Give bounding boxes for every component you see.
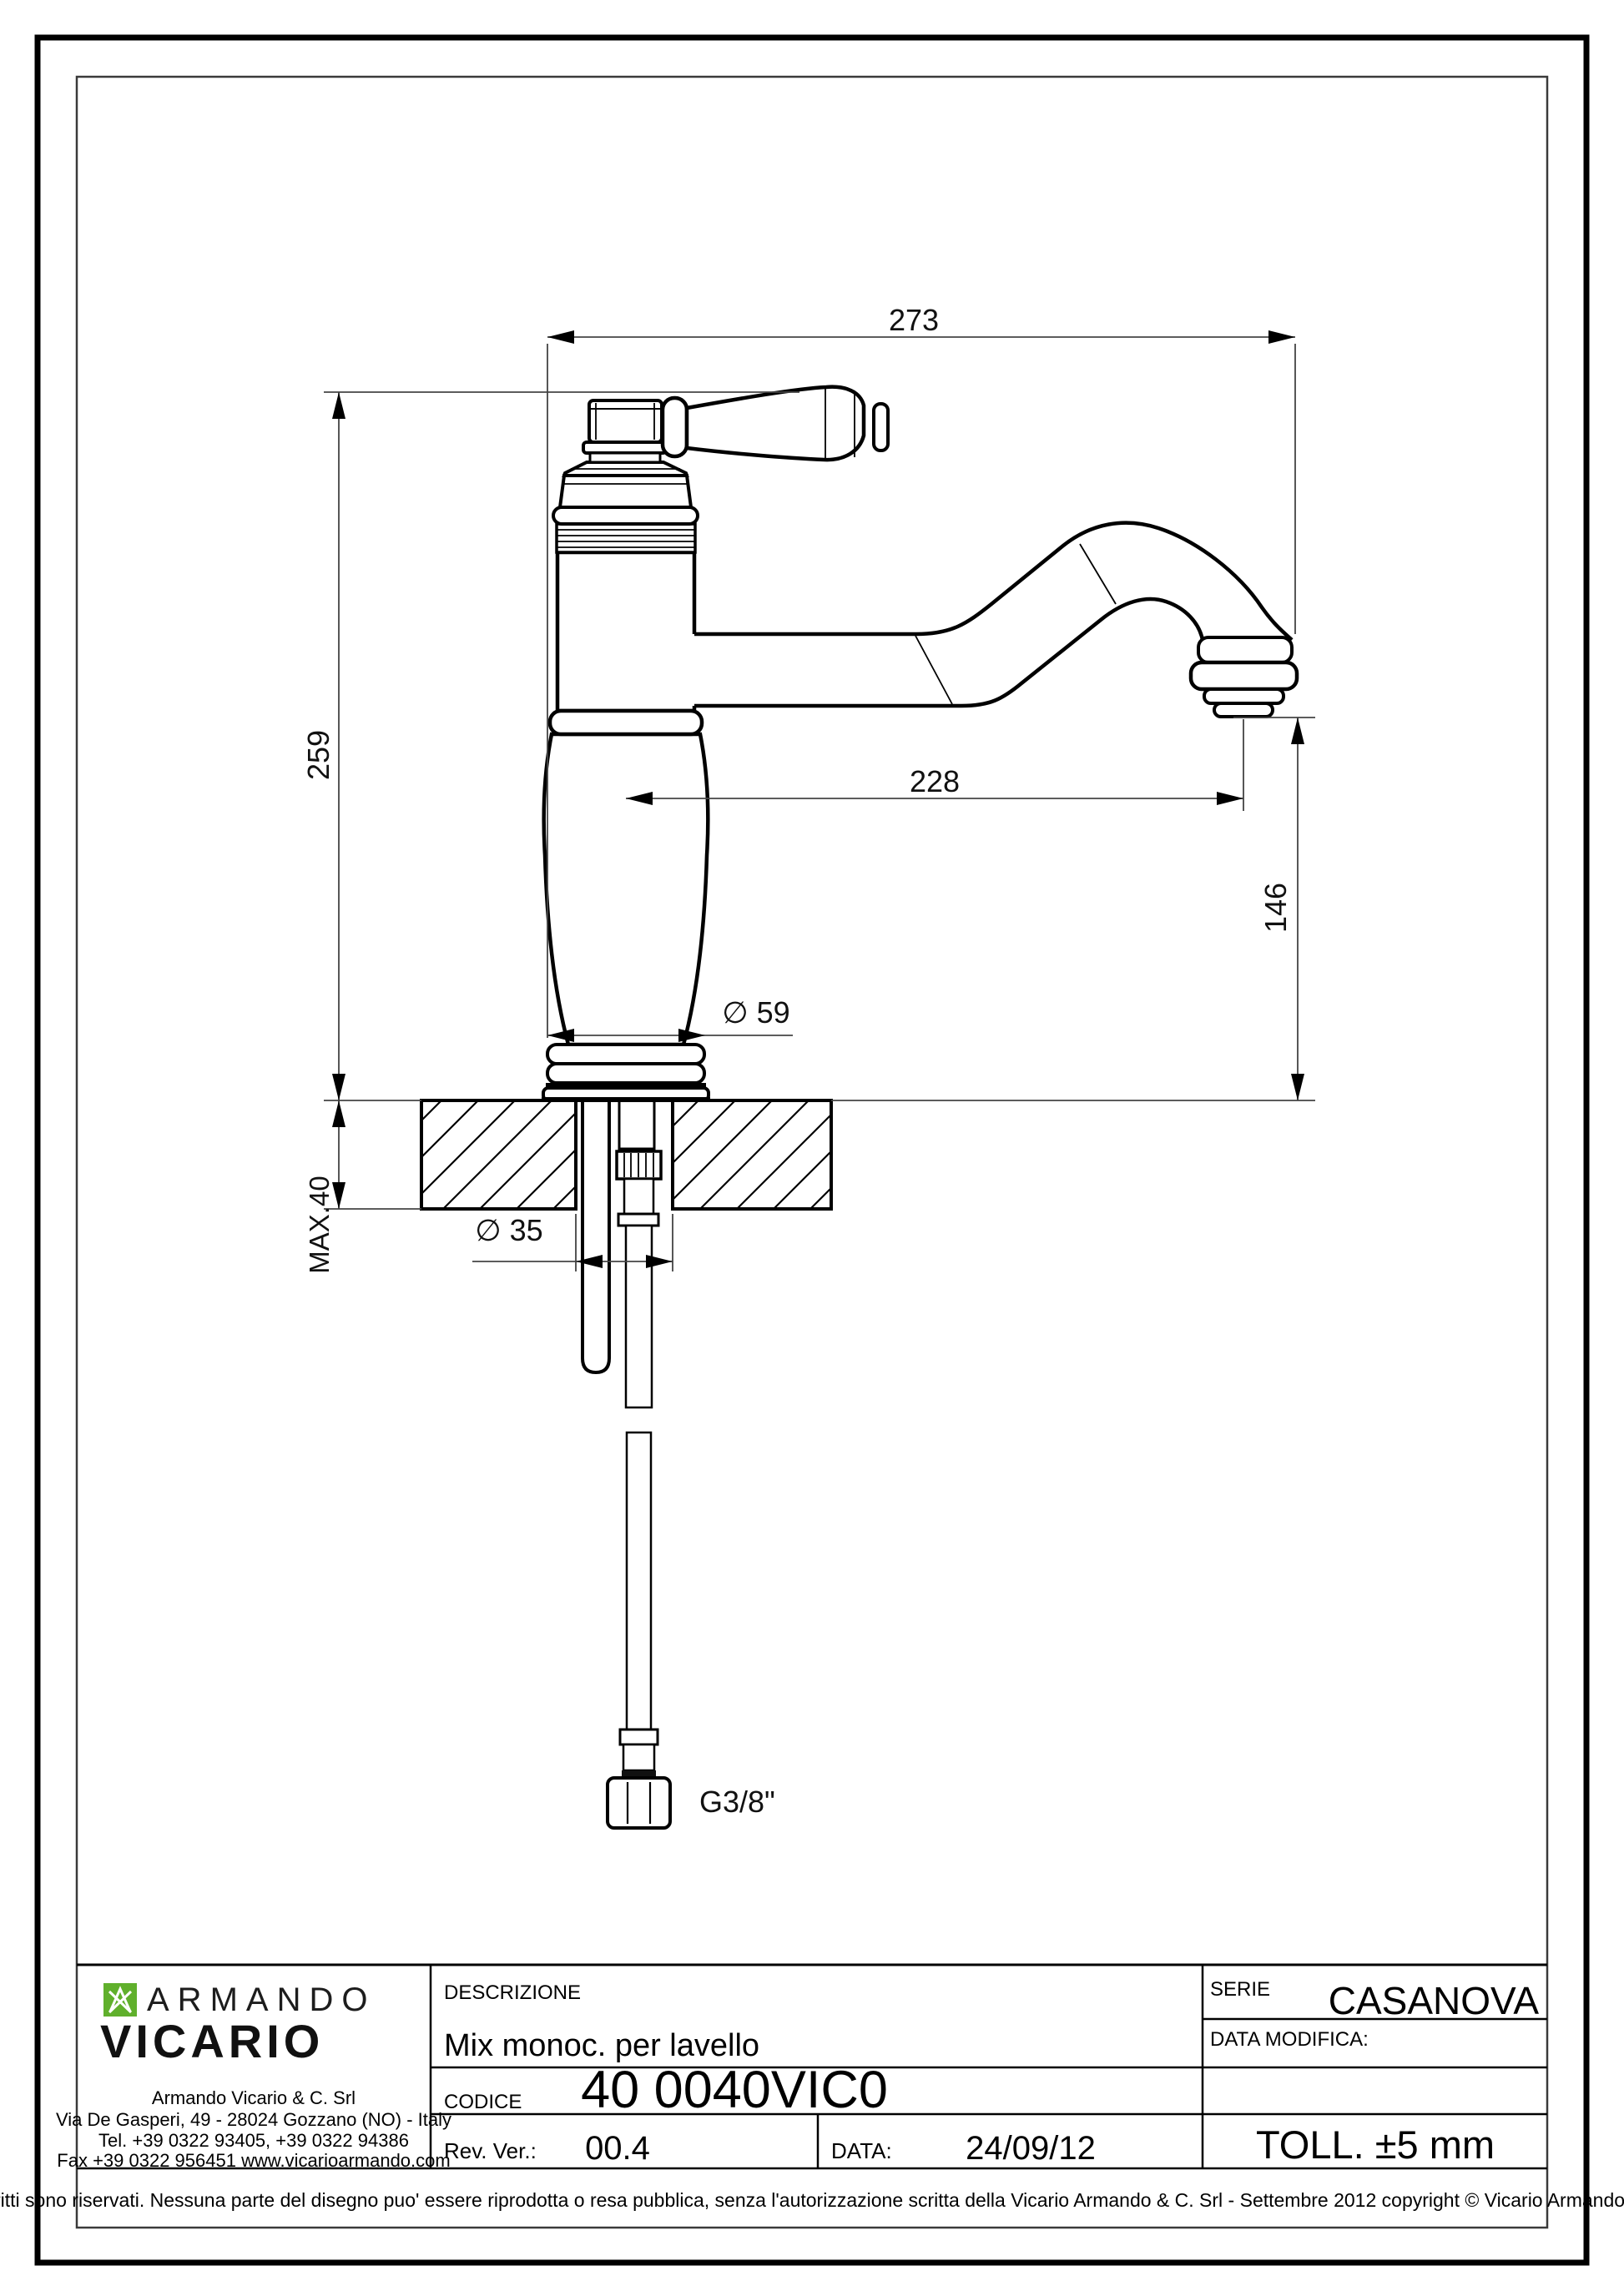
- serie-value: CASANOVA: [1329, 1979, 1540, 2022]
- data-modifica-label: DATA MODIFICA:: [1210, 2028, 1369, 2051]
- codice-value: 40 0040VIC0: [581, 2061, 888, 2119]
- dim-hole-diameter: ∅ 35: [475, 1213, 542, 1247]
- address-line: Via De Gasperi, 49 - 28024 Gozzano (NO) …: [56, 2109, 451, 2130]
- dim-total-height: 259: [301, 730, 335, 780]
- codice-label: CODICE: [444, 2091, 522, 2113]
- data-label: DATA:: [831, 2138, 892, 2163]
- dim-supply-thread: G3/8": [699, 1785, 775, 1819]
- descrizione-label: DESCRIZIONE: [444, 1981, 581, 2004]
- address-line: Armando Vicario & C. Srl: [152, 2087, 356, 2108]
- address-line: Fax +39 0322 956451 www.vicarioarmando.c…: [57, 2150, 450, 2171]
- descrizione-value: Mix monoc. per lavello: [444, 2028, 759, 2063]
- brand-name-top: ARMANDO: [147, 1981, 376, 2018]
- serie-label: SERIE: [1210, 1978, 1270, 2001]
- rev-label: Rev. Ver.:: [444, 2138, 537, 2163]
- spout-outlet: [1191, 637, 1297, 717]
- disclaimer-text: Tutti i diritti sono riservati. Nessuna …: [0, 2189, 1624, 2211]
- dim-base-diameter: ∅ 59: [722, 995, 789, 1030]
- brand-logo: ARMANDO VICARIO: [100, 1981, 376, 2067]
- rev-value: 00.4: [585, 2130, 650, 2167]
- dim-spout-height: 146: [1258, 883, 1293, 933]
- supply-assembly: [617, 1100, 661, 1407]
- faucet-handle: [583, 387, 888, 462]
- data-value: 24/09/12: [966, 2130, 1096, 2167]
- supply-hose: [608, 1432, 670, 1828]
- company-address: Armando Vicario & C. Srl Via De Gasperi,…: [56, 2087, 451, 2171]
- dim-max-counter: MAX.40: [304, 1176, 335, 1273]
- drawing-sheet: 273 259 228 146 ∅ 59 ∅ 35 MAX.40 G3/8" A…: [0, 0, 1624, 2296]
- toll-value: TOLL. ±5 mm: [1256, 2122, 1495, 2167]
- dimension-labels: 273 259 228 146 ∅ 59 ∅ 35 MAX.40 G3/8": [301, 303, 1293, 1819]
- dim-spout-reach: 228: [910, 764, 960, 798]
- address-line: Tel. +39 0322 93405, +39 0322 94386: [98, 2130, 409, 2151]
- brand-name-bottom: VICARIO: [100, 2015, 324, 2067]
- title-block-fields: DESCRIZIONE Mix monoc. per lavello CODIC…: [444, 1978, 1539, 2167]
- mounting-rod: [583, 1095, 609, 1372]
- dim-total-width: 273: [889, 303, 939, 337]
- faucet-body: [542, 462, 710, 1100]
